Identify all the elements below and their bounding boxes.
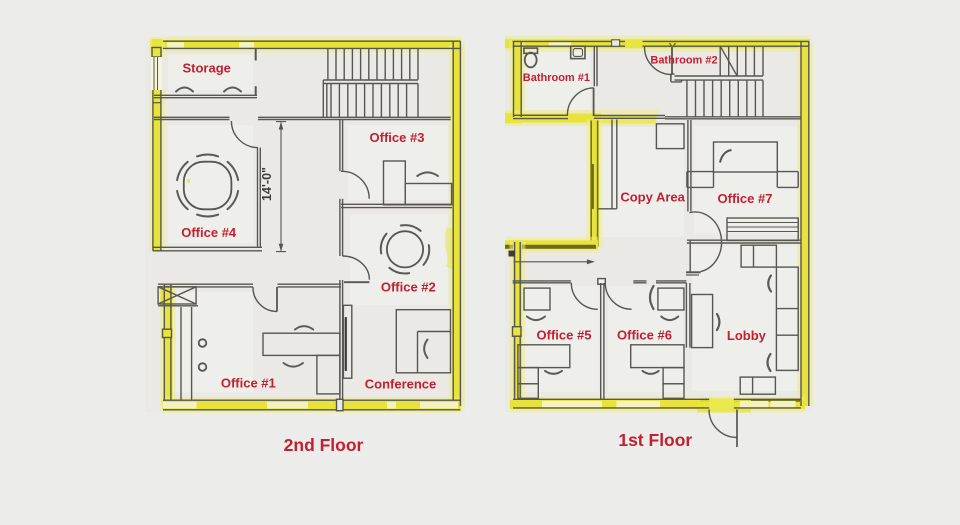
svg-text:Bathroom #1: Bathroom #1 xyxy=(523,72,590,84)
svg-text:Office #1: Office #1 xyxy=(221,376,276,391)
svg-text:2nd Floor: 2nd Floor xyxy=(284,435,364,455)
svg-text:Office #2: Office #2 xyxy=(381,279,436,294)
svg-text:Office #5: Office #5 xyxy=(537,327,592,342)
svg-text:Copy Area: Copy Area xyxy=(620,189,685,204)
svg-text:Office #6: Office #6 xyxy=(617,327,672,342)
svg-text:1st Floor: 1st Floor xyxy=(618,430,692,450)
svg-text:Office #7: Office #7 xyxy=(718,191,773,206)
svg-text:Storage: Storage xyxy=(182,61,230,76)
svg-text:Office #4: Office #4 xyxy=(181,225,237,240)
svg-text:Lobby: Lobby xyxy=(727,328,767,343)
svg-text:14'-0": 14'-0" xyxy=(260,167,274,201)
svg-text:Conference: Conference xyxy=(365,377,437,392)
svg-text:Bathroom #2: Bathroom #2 xyxy=(650,54,717,66)
svg-text:Office #3: Office #3 xyxy=(370,130,425,145)
